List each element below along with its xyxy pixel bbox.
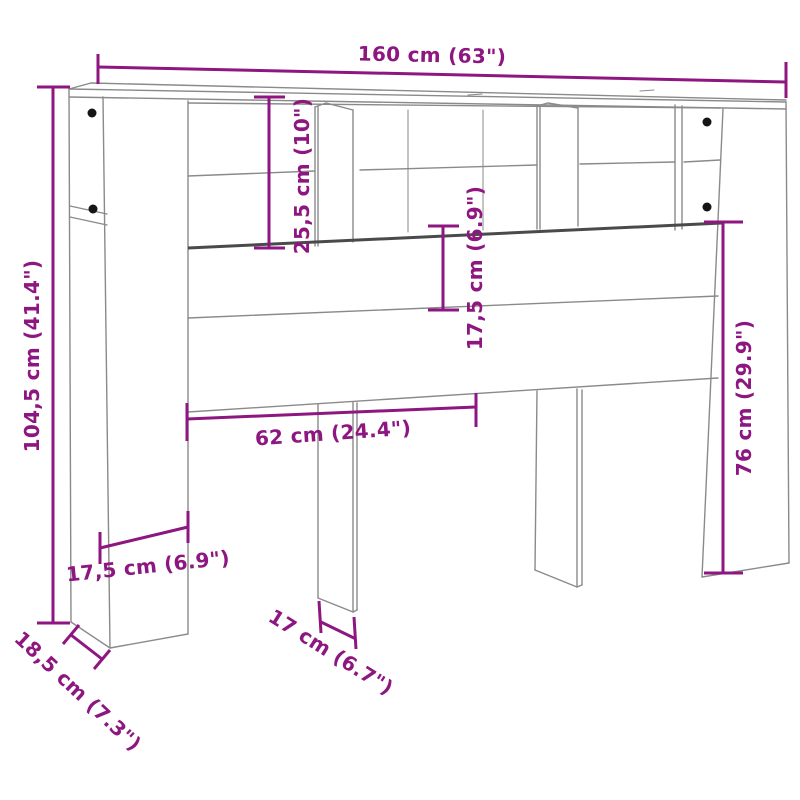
label-middle-rail-height: 17,5 cm (6.9"): [463, 186, 487, 350]
divider-left: [315, 103, 353, 246]
divider-far-right: [675, 105, 682, 230]
label-shelf-section-height: 25,5 cm (10"): [290, 98, 314, 254]
divider-right: [537, 103, 578, 229]
cam-lock-dots: [88, 109, 712, 214]
cam-lock-dot: [703, 118, 712, 127]
label-overall-height: 104,5 cm (41.4"): [20, 260, 44, 453]
leg-right: [535, 389, 582, 587]
back-panel: [188, 296, 718, 412]
dimension-middle-rail-height: [428, 226, 459, 310]
cam-lock-dot: [703, 203, 712, 212]
cam-lock-dot: [88, 109, 97, 118]
label-lower-right-height: 76 cm (29.9"): [732, 320, 756, 476]
diagram-canvas: 160 cm (63") 104,5 cm (41.4") 25,5 cm (1…: [0, 0, 800, 800]
cam-lock-dot: [89, 205, 98, 214]
headboard-line-drawing: [0, 0, 800, 800]
label-overall-width: 160 cm (63"): [358, 41, 507, 68]
